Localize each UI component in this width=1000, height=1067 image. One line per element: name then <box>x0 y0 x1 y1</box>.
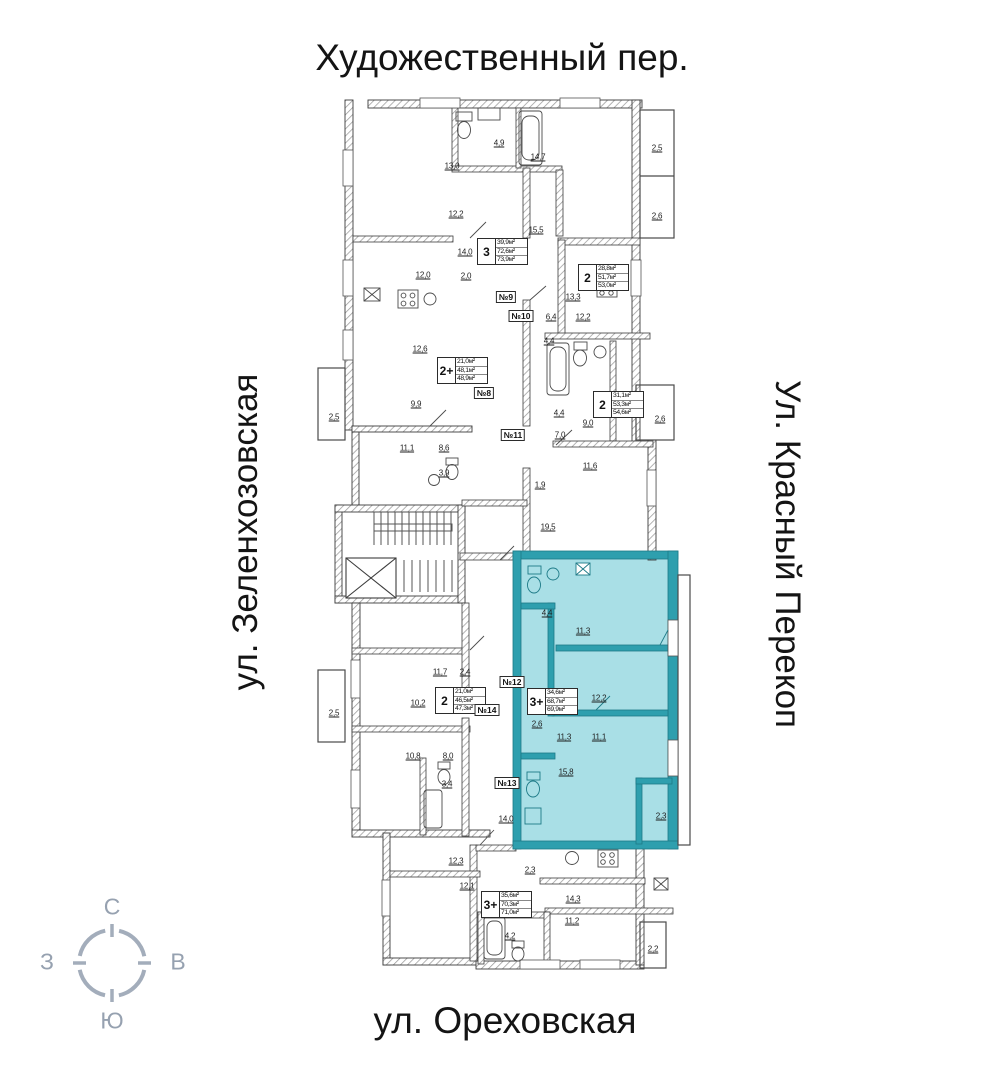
dimension-label: 1,9 <box>535 481 546 490</box>
apartment-areas: 28,8м² 51,7м² 53,0м² <box>596 265 628 290</box>
apartment-areas: 34,6м² 68,7м² 69,9м² <box>545 689 577 714</box>
unit-number-13: №13 <box>495 777 520 789</box>
dimension-label: 2,5 <box>652 144 663 153</box>
dimension-label: 8,0 <box>443 752 454 761</box>
dimension-label: 15,8 <box>559 768 574 777</box>
dimension-label: 19,5 <box>541 523 556 532</box>
dimension-label: 11,3 <box>557 733 571 742</box>
dimension-label: 9,0 <box>583 419 594 428</box>
dimension-label: 4,4 <box>542 609 553 618</box>
apartment-label-3plus-highlighted[interactable]: 3+ 34,6м² 68,7м² 69,9м² <box>527 688 578 715</box>
dimension-label: 11,1 <box>592 733 606 742</box>
dimension-label: 9,9 <box>411 400 422 409</box>
dimension-label: 2,6 <box>652 212 663 221</box>
dimension-label: 11,3 <box>576 627 590 636</box>
dimension-label: 12,6 <box>413 345 428 354</box>
apartment-type: 3 <box>478 239 495 264</box>
dimension-label: 14,0 <box>458 248 473 257</box>
dimension-label: 4,4 <box>544 337 555 346</box>
dimension-label: 11,2 <box>565 917 579 926</box>
dimension-label: 4,4 <box>554 409 565 418</box>
dimension-label: 10,8 <box>406 752 421 761</box>
apartment-type: 2 <box>436 688 453 713</box>
dimension-label: 2,6 <box>532 720 543 729</box>
dimension-label: 2,2 <box>648 945 659 954</box>
dimension-label: 11,1 <box>400 444 414 453</box>
apartment-label-2-right-mid[interactable]: 2 31,1м² 53,3м² 54,6м² <box>593 391 644 418</box>
apartment-type: 2 <box>594 392 611 417</box>
unit-number-9: №9 <box>496 291 516 303</box>
dimension-label: 3,4 <box>442 780 453 789</box>
unit-number-8: №8 <box>474 387 494 399</box>
dimension-label: 2,6 <box>655 415 666 424</box>
dimension-label: 4,2 <box>505 932 516 941</box>
apartment-label-2plus[interactable]: 2+ 21,0м² 48,1м² 48,9м² <box>437 357 488 384</box>
dimension-label: 14,3 <box>566 895 581 904</box>
unit-number-10: №10 <box>509 310 534 322</box>
dimension-label: 2,5 <box>329 413 340 422</box>
apartment-areas: 39,9м² 72,6м² 73,9м² <box>495 239 527 264</box>
dimension-label: 2,0 <box>461 272 472 281</box>
unit-number-14: №14 <box>475 704 500 716</box>
apartment-type: 2+ <box>438 358 455 383</box>
dimension-label: 11,6 <box>583 462 597 471</box>
apartment-type: 3+ <box>528 689 545 714</box>
dimension-label: 7,0 <box>555 431 566 440</box>
dimension-label: 14,7 <box>531 153 546 162</box>
dimension-label: 13,0 <box>445 162 460 171</box>
apartment-label-3plus-bottom[interactable]: 3+ 35,6м² 70,3м² 71,0м² <box>481 891 532 918</box>
dimension-label: 12,2 <box>449 210 464 219</box>
unit-number-11: №11 <box>501 429 525 441</box>
apartment-areas: 21,0м² 48,1м² 48,9м² <box>455 358 487 383</box>
dimension-label: 15,5 <box>529 226 544 235</box>
floorplan-page: Художественный пер. ул. Зеленхозовская У… <box>0 0 1000 1067</box>
apartment-label-3[interactable]: 3 39,9м² 72,6м² 73,9м² <box>477 238 528 265</box>
apartment-areas: 35,6м² 70,3м² 71,0м² <box>499 892 531 917</box>
apartment-areas: 31,1м² 53,3м² 54,6м² <box>611 392 643 417</box>
dimension-label: 14,0 <box>499 815 514 824</box>
apartment-type: 2 <box>579 265 596 290</box>
dimension-label: 2,3 <box>525 866 536 875</box>
dimension-label: 6,4 <box>546 313 557 322</box>
dimension-label: 12,0 <box>416 271 431 280</box>
dimension-label: 10,2 <box>411 699 426 708</box>
dimension-label: 4,9 <box>494 139 505 148</box>
unit-number-12: №12 <box>500 676 525 688</box>
dimension-label: 2,3 <box>656 812 667 821</box>
dimension-label: 12,1 <box>460 882 475 891</box>
dimension-label: 3,9 <box>439 469 450 478</box>
apartment-type: 3+ <box>482 892 499 917</box>
dimension-label: 12,3 <box>449 857 464 866</box>
dimension-label: 12,2 <box>592 694 607 703</box>
apartment-label-2-right-top[interactable]: 2 28,8м² 51,7м² 53,0м² <box>578 264 629 291</box>
dimension-label: 13,3 <box>566 293 581 302</box>
dimension-label: 11,7 <box>433 668 447 677</box>
dimension-label: 8,6 <box>439 444 450 453</box>
dimension-label: 12,2 <box>576 313 591 322</box>
dimension-label: 2,4 <box>460 668 471 677</box>
dimension-label: 2,5 <box>329 709 340 718</box>
elevator <box>346 558 396 598</box>
